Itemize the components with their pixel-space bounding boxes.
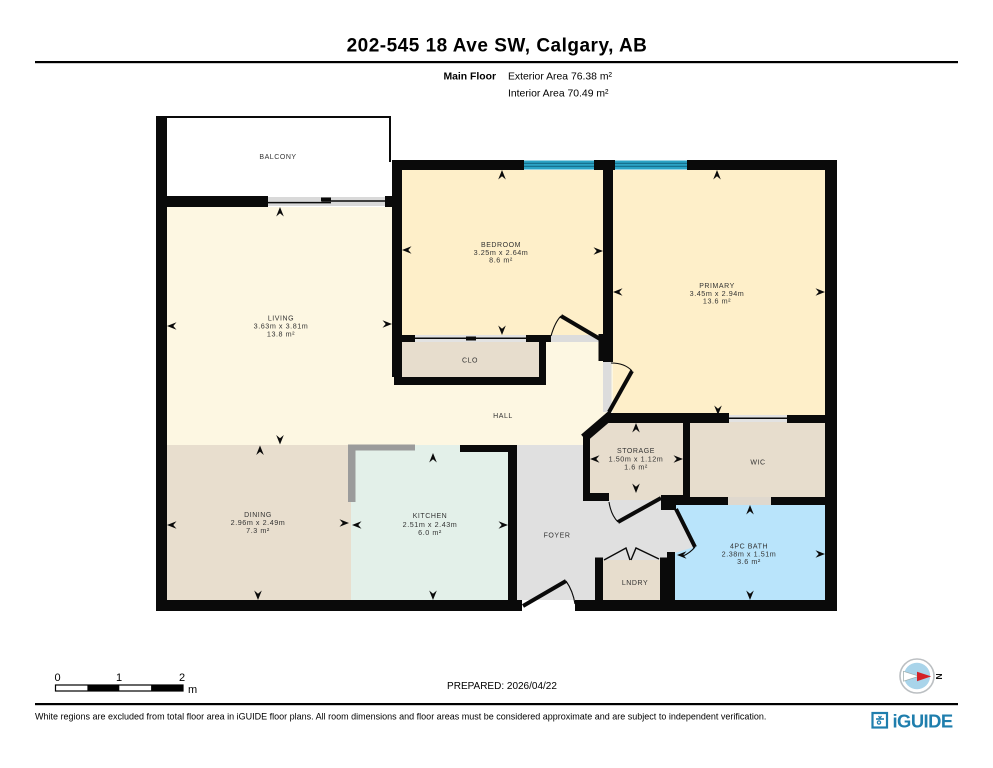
svg-text:1: 1 [116, 672, 122, 684]
svg-text:Interior Area 70.49 m²: Interior Area 70.49 m² [508, 89, 609, 100]
svg-text:HALL: HALL [493, 413, 513, 420]
svg-text:0: 0 [54, 672, 60, 684]
svg-text:1.6 m²: 1.6 m² [624, 463, 648, 472]
svg-text:13.6 m²: 13.6 m² [703, 297, 731, 306]
svg-text:2: 2 [179, 672, 185, 684]
svg-text:iGUIDE: iGUIDE [893, 711, 953, 732]
svg-text:13.8 m²: 13.8 m² [267, 330, 295, 339]
svg-text:m: m [188, 684, 197, 696]
svg-text:3.6 m²: 3.6 m² [737, 557, 761, 566]
svg-text:Exterior Area 76.38 m²: Exterior Area 76.38 m² [508, 72, 612, 83]
svg-text:White regions are excluded fro: White regions are excluded from total fl… [35, 712, 766, 722]
svg-text:8.6 m²: 8.6 m² [489, 256, 513, 265]
svg-text:N: N [934, 673, 944, 679]
svg-text:LNDRY: LNDRY [622, 580, 648, 587]
svg-text:PREPARED: 2026/04/22: PREPARED: 2026/04/22 [447, 681, 557, 692]
svg-text:Main Floor: Main Floor [443, 72, 496, 83]
svg-text:7.3 m²: 7.3 m² [246, 526, 270, 535]
svg-text:WIC: WIC [750, 460, 765, 467]
svg-text:6.0 m²: 6.0 m² [418, 528, 442, 537]
svg-text:CLO: CLO [462, 358, 478, 365]
svg-text:BALCONY: BALCONY [259, 154, 296, 161]
svg-text:KITCHEN: KITCHEN [413, 513, 448, 520]
svg-text:202-545 18 Ave SW, Calgary, AB: 202-545 18 Ave SW, Calgary, AB [347, 36, 648, 57]
svg-text:FOYER: FOYER [544, 533, 571, 540]
